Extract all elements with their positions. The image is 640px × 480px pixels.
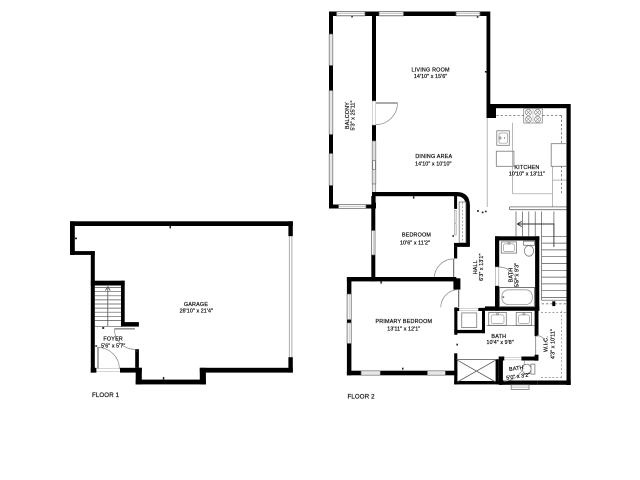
svg-text:FLOOR 1: FLOOR 1 — [92, 392, 120, 399]
svg-text:5'6" x 5'7": 5'6" x 5'7" — [101, 343, 125, 349]
svg-text:13'11" x 12'1": 13'11" x 12'1" — [387, 326, 420, 332]
svg-text:5'3" x 25'11": 5'3" x 25'11" — [351, 101, 357, 131]
svg-text:KITCHEN: KITCHEN — [514, 165, 539, 171]
svg-text:PRIMARY BEDROOM: PRIMARY BEDROOM — [375, 319, 432, 325]
svg-text:10'10" x 13'11": 10'10" x 13'11" — [509, 172, 545, 178]
svg-text:FLOOR 2: FLOOR 2 — [348, 394, 376, 401]
svg-text:GARAGE: GARAGE — [184, 302, 208, 308]
svg-text:4'3" x 10'11": 4'3" x 10'11" — [550, 329, 556, 359]
svg-text:LIVING ROOM: LIVING ROOM — [412, 67, 450, 73]
svg-text:14'10" x 10'10": 14'10" x 10'10" — [415, 161, 451, 167]
svg-text:10'6" x 11'2": 10'6" x 11'2" — [400, 240, 430, 246]
svg-text:FOYER: FOYER — [103, 337, 123, 343]
svg-text:14'10" x 15'6": 14'10" x 15'6" — [414, 74, 447, 80]
svg-text:10'4" x 9'8": 10'4" x 9'8" — [487, 340, 514, 346]
svg-text:BEDROOM: BEDROOM — [402, 233, 432, 239]
svg-text:6'3" x 13'1": 6'3" x 13'1" — [479, 254, 485, 281]
svg-text:W.I.C.: W.I.C. — [544, 336, 550, 352]
svg-text:5'5" x 9'3": 5'5" x 9'3" — [515, 263, 521, 287]
svg-text:DINING AREA: DINING AREA — [415, 154, 452, 160]
svg-text:28'10" x 21'4": 28'10" x 21'4" — [180, 309, 213, 315]
